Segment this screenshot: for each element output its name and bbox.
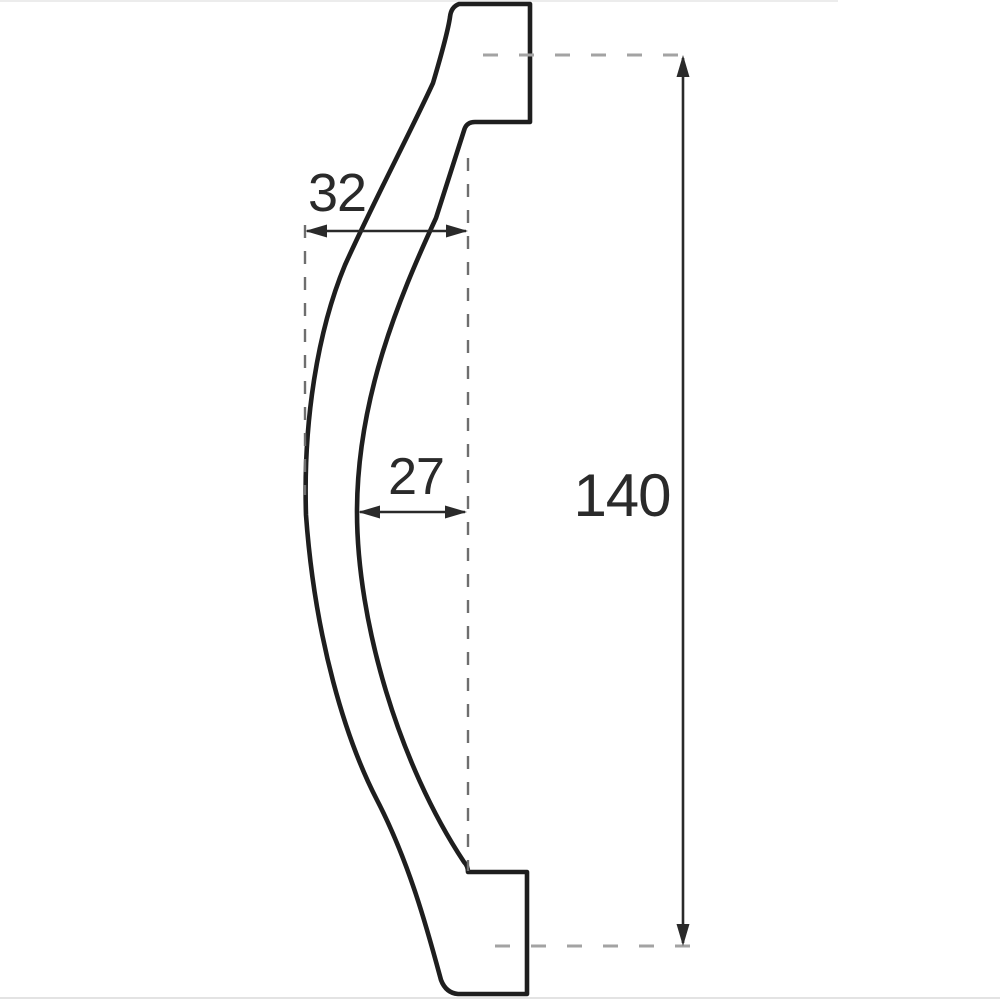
technical-drawing-canvas: 32 27 140 [0,0,1000,1000]
dim-140-arrowhead-top [677,55,690,77]
dim-32-label: 32 [308,163,366,223]
dim-32-arrowhead-left [305,225,327,238]
dim-27-arrowhead-right [445,506,467,519]
dim-27-arrowhead-left [358,506,380,519]
dim-27-label: 27 [388,448,444,506]
dim-32-arrowhead-right [446,225,468,238]
dim-140-label: 140 [573,462,670,529]
dim-140-arrowhead-bottom [677,924,690,946]
handle-profile-drawing: 32 27 140 [0,0,1000,1000]
